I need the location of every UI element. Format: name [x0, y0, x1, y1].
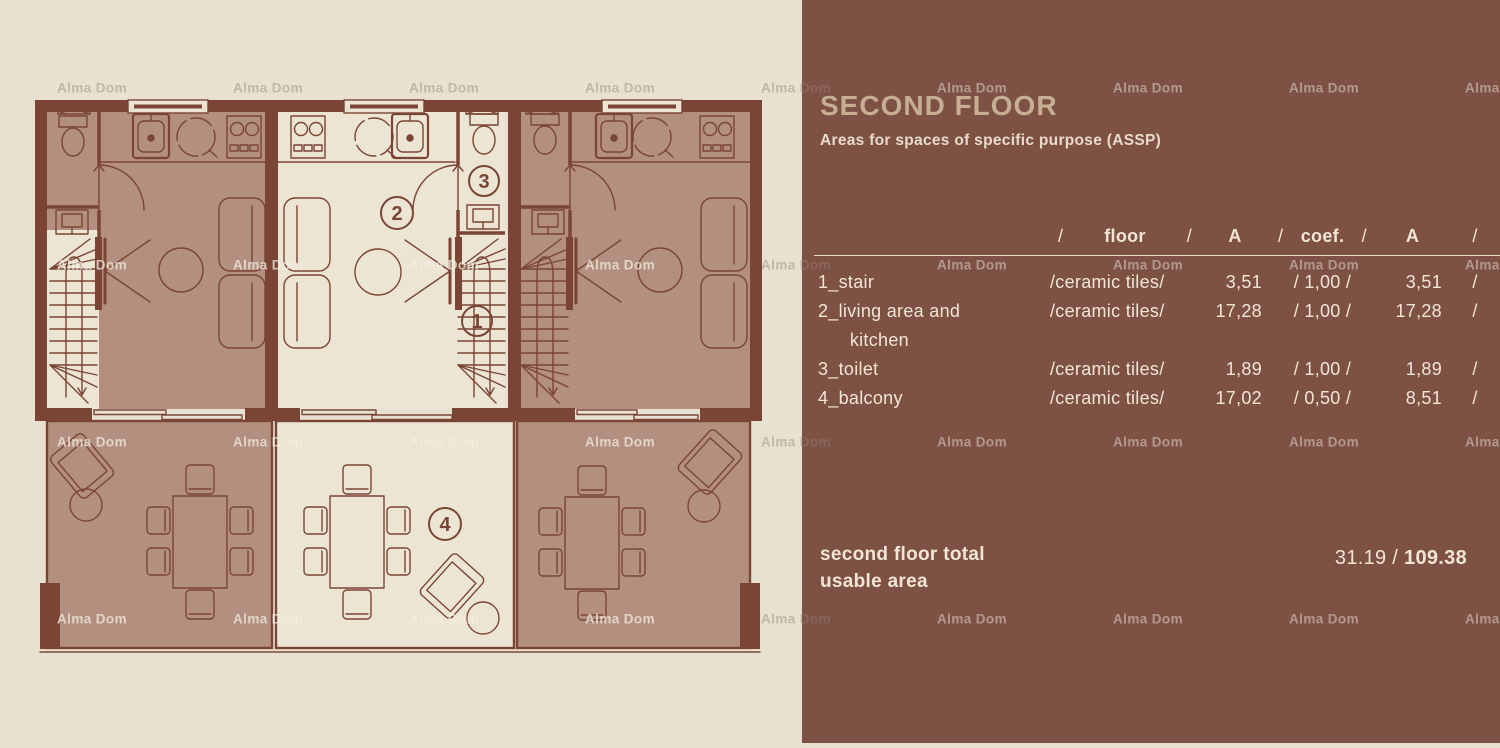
- page-subtitle: Areas for spaces of specific purpose (AS…: [820, 132, 1161, 150]
- total-row: second floor total usable area 31.19 / 1…: [820, 541, 1467, 595]
- row-name: 4_balcony: [814, 384, 1050, 413]
- row-area-corrected: 17,28: [1375, 297, 1450, 326]
- page-title: SECOND FLOOR: [820, 90, 1058, 122]
- row-floor: /ceramic tiles/: [1050, 355, 1200, 384]
- row-area-corrected: 1,89: [1375, 355, 1450, 384]
- floor-plan-side: 2 3 1 4: [0, 0, 802, 743]
- row-coef: / 1,00 /: [1270, 355, 1375, 384]
- label-balcony: 4: [439, 514, 451, 536]
- kitchen-window: [602, 100, 682, 113]
- assp-table: / floor / A / coef. / A / 1_stair /ceram…: [814, 226, 1500, 413]
- row-coef: / 1,00 /: [1270, 268, 1375, 297]
- table-row: 3_toilet /ceramic tiles/ 1,89 / 1,00 / 1…: [814, 355, 1500, 384]
- header-slash: /: [1187, 226, 1192, 247]
- row-area: 17,02: [1200, 384, 1270, 413]
- row-name: 3_toilet: [814, 355, 1050, 384]
- label-stair: 1: [471, 311, 482, 333]
- row-floor: /ceramic tiles/: [1050, 297, 1200, 326]
- page: 2 3 1 4 SECOND FLOOR Areas for spaces of…: [0, 0, 1500, 743]
- header-coef-col: / coef. /: [1270, 226, 1375, 247]
- header-floor-col: / floor /: [1050, 226, 1200, 247]
- header-slash: /: [1362, 226, 1367, 247]
- row-name: 2_living area and kitchen: [814, 297, 1050, 355]
- header-a2: A: [1375, 226, 1450, 247]
- sliding-doors: [94, 410, 698, 420]
- row-area-corrected: 8,51: [1375, 384, 1450, 413]
- total-value-bold: 109.38: [1404, 547, 1467, 569]
- table-row: 1_stair /ceramic tiles/ 3,51 / 1,00 / 3,…: [814, 268, 1500, 297]
- row-slash: /: [1450, 268, 1500, 297]
- header-name-col: [814, 226, 1050, 227]
- assp-table-body: 1_stair /ceramic tiles/ 3,51 / 1,00 / 3,…: [814, 256, 1500, 413]
- assp-table-header: / floor / A / coef. / A /: [814, 226, 1500, 256]
- row-slash: /: [1450, 355, 1500, 384]
- row-area: 17,28: [1200, 297, 1270, 326]
- table-row: 4_balcony /ceramic tiles/ 17,02 / 0,50 /…: [814, 384, 1500, 413]
- header-a: A: [1200, 226, 1270, 247]
- header-coef: coef.: [1301, 226, 1345, 247]
- row-floor: /ceramic tiles/: [1050, 268, 1200, 297]
- header-floor: floor: [1104, 226, 1146, 247]
- header-slash: /: [1278, 226, 1283, 247]
- header-slash: /: [1450, 226, 1500, 247]
- kitchen-window: [344, 100, 424, 113]
- table-row: 2_living area and kitchen /ceramic tiles…: [814, 297, 1500, 355]
- row-slash: /: [1450, 297, 1500, 326]
- row-area: 1,89: [1200, 355, 1270, 384]
- row-coef: / 1,00 /: [1270, 297, 1375, 326]
- row-name: 1_stair: [814, 268, 1050, 297]
- total-value-regular: 31.19 /: [1335, 547, 1404, 569]
- row-area: 3,51: [1200, 268, 1270, 297]
- row-coef: / 0,50 /: [1270, 384, 1375, 413]
- row-floor: /ceramic tiles/: [1050, 384, 1200, 413]
- label-toilet: 3: [478, 171, 489, 193]
- label-living-kitchen: 2: [391, 203, 402, 225]
- row-area-corrected: 3,51: [1375, 268, 1450, 297]
- total-label: second floor total usable area: [820, 541, 985, 595]
- info-panel: SECOND FLOOR Areas for spaces of specifi…: [802, 0, 1500, 743]
- row-slash: /: [1450, 384, 1500, 413]
- header-slash: /: [1058, 226, 1063, 247]
- total-value: 31.19 / 109.38: [1335, 547, 1467, 570]
- floor-plan-drawing: 2 3 1 4: [0, 0, 802, 743]
- kitchen-window: [128, 100, 208, 113]
